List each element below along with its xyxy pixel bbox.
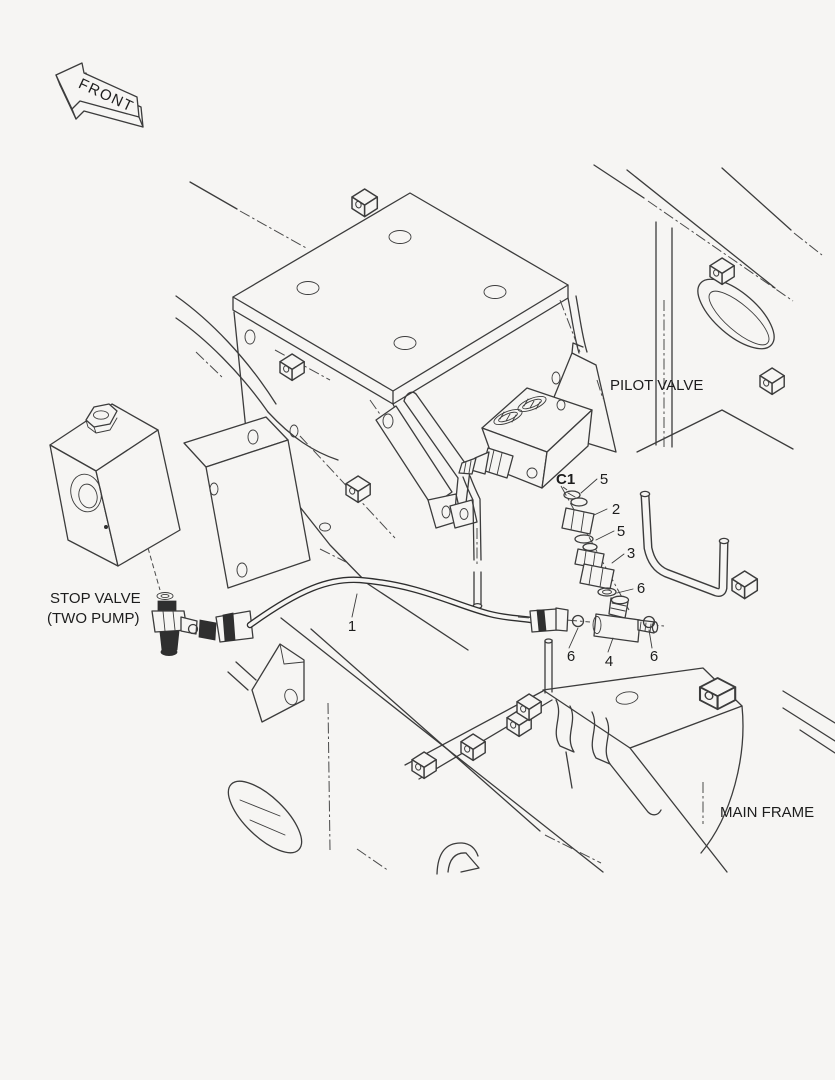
mount-nut bbox=[760, 368, 784, 394]
front-direction-arrow: FRONT bbox=[56, 63, 143, 127]
callout-6-left: 6 bbox=[567, 648, 575, 665]
mount-nut bbox=[346, 476, 370, 502]
u-pipe bbox=[640, 491, 757, 598]
main-frame-label: MAIN FRAME bbox=[720, 804, 814, 821]
callout-1: 1 bbox=[348, 618, 356, 635]
callout-6-washer: 6 bbox=[637, 580, 645, 597]
port-label-c1: C1 bbox=[556, 471, 575, 488]
hose bbox=[250, 580, 531, 625]
stop-valve-label-line2: (TWO PUMP) bbox=[47, 610, 139, 627]
washer-6a bbox=[598, 588, 616, 596]
fitting-2 bbox=[562, 498, 594, 534]
mount-nut bbox=[412, 752, 436, 778]
stop-valve bbox=[50, 404, 180, 590]
lower-left-frame bbox=[217, 644, 479, 874]
mount-nut bbox=[280, 354, 304, 380]
elbow-fitting-4 bbox=[593, 596, 658, 642]
mount-nut bbox=[352, 189, 377, 217]
pedal-assembly bbox=[370, 392, 482, 608]
callout-3: 3 bbox=[627, 545, 635, 562]
callout-2: 2 bbox=[612, 501, 620, 518]
callout-4: 4 bbox=[605, 653, 613, 670]
stop-valve-label-line1: STOP VALVE bbox=[50, 590, 141, 607]
frame-slot-right bbox=[687, 258, 785, 394]
callout-6-right: 6 bbox=[650, 648, 658, 665]
callout-5-mid: 5 bbox=[617, 523, 625, 540]
rear-post bbox=[656, 222, 672, 447]
stop-valve-tee-fitting bbox=[152, 593, 253, 656]
pilot-valve-label: PILOT VALVE bbox=[610, 377, 703, 394]
mount-nut bbox=[732, 571, 757, 599]
main-frame-platform bbox=[412, 639, 743, 872]
angle-bracket bbox=[184, 417, 310, 588]
parts-diagram-canvas: FRONT bbox=[0, 0, 835, 1080]
mount-nut bbox=[461, 734, 485, 760]
fitting-3 bbox=[575, 544, 614, 590]
parts-diagram-page: FRONT bbox=[0, 0, 835, 1080]
callout-5-top: 5 bbox=[600, 471, 608, 488]
hose-end-fitting bbox=[530, 608, 568, 632]
